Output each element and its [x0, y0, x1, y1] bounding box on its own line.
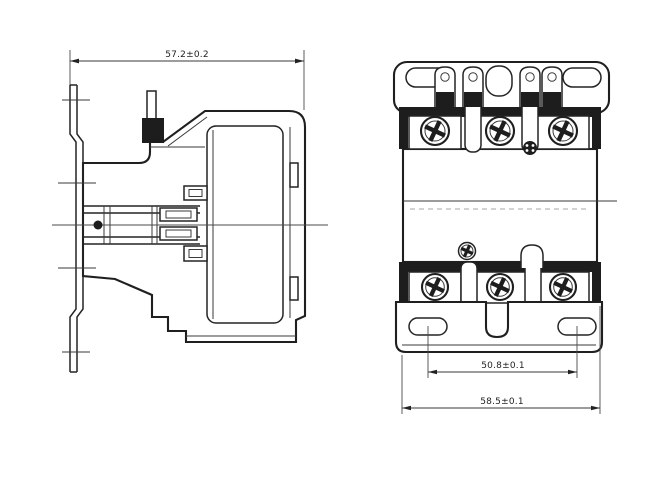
arch-tab: [521, 245, 543, 268]
dim-overall-width-label: 58.5±0.1: [480, 397, 524, 407]
dim-hole-spacing-label: 50.8±0.1: [481, 361, 525, 371]
top-dimension: 57.2±0.2: [70, 50, 304, 110]
arrowhead-left: [70, 59, 79, 64]
spade-terminal: [435, 67, 455, 107]
arrowhead-right: [568, 370, 577, 375]
arrowhead-left: [402, 406, 411, 411]
side-view: 57.2±0.2: [52, 50, 328, 372]
side-rib-upper: [290, 163, 298, 187]
rivet-dotted: [523, 141, 537, 155]
coil-screw-icon: [458, 242, 475, 259]
technical-drawing-page: 57.2±0.2: [0, 0, 650, 481]
terminal-screws-bottom: [422, 274, 577, 301]
pivot-rivet: [94, 221, 103, 230]
phillips-screw-icon: [485, 116, 514, 145]
front-view: 50.8±0.1 58.5±0.1: [394, 62, 617, 414]
side-rib-lower: [290, 277, 298, 300]
spade-terminal: [520, 67, 540, 107]
phillips-screw-icon: [548, 116, 577, 145]
phillips-screw-icon: [420, 116, 449, 145]
phillips-screw-icon: [422, 274, 449, 301]
bottom-terminal-band: [403, 262, 597, 272]
side-terminal-tab: [142, 91, 164, 143]
spade-terminal: [463, 67, 483, 107]
contactor-drawing: 57.2±0.2: [0, 0, 650, 481]
terminal-screws-top: [420, 116, 577, 145]
contactor-body-front: [403, 149, 597, 262]
arrowhead-right: [295, 59, 304, 64]
dim-side-width-label: 57.2±0.2: [165, 50, 209, 60]
phillips-screw-icon: [487, 274, 514, 301]
spade-terminal: [542, 67, 562, 107]
phillips-screw-icon: [550, 274, 577, 301]
arrowhead-left: [428, 370, 437, 375]
arrowhead-right: [591, 406, 600, 411]
